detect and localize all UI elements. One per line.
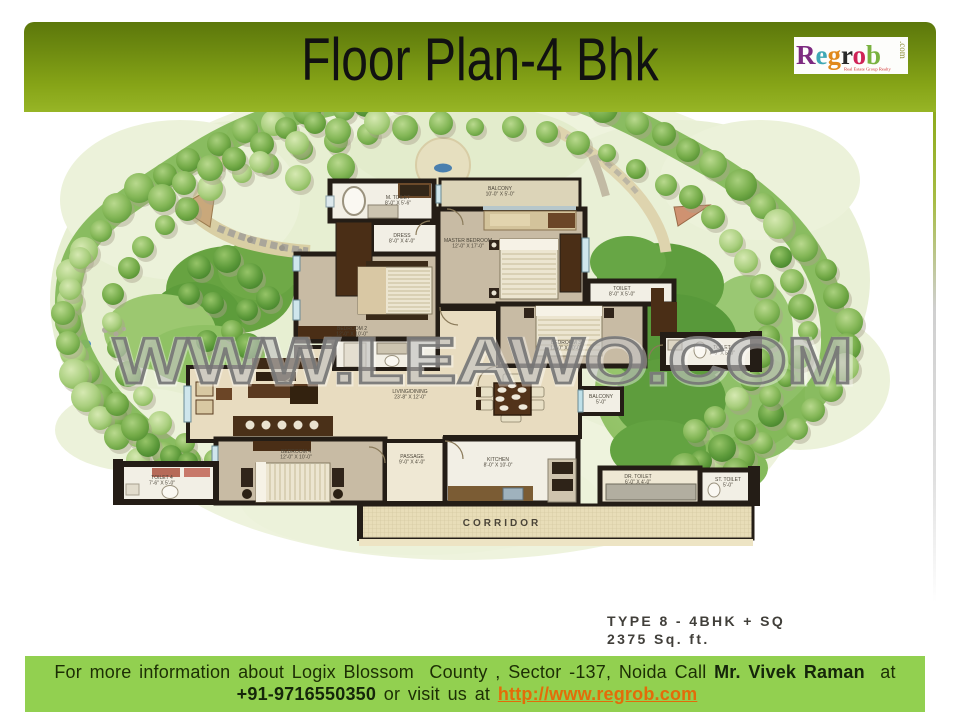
svg-text:BEDROOM 412'-0" X 10'-0": BEDROOM 412'-0" X 10'-0" [280, 449, 312, 461]
svg-text:.com: .com [898, 41, 908, 59]
svg-text:CORRIDOR: CORRIDOR [463, 518, 541, 529]
svg-text:Real Estate Group Realty: Real Estate Group Realty [844, 67, 892, 72]
svg-text:BALCONY10'-0" X 5'-0": BALCONY10'-0" X 5'-0" [486, 186, 515, 198]
svg-text:TOILET 47'-6" X 5'-0": TOILET 47'-6" X 5'-0" [149, 475, 175, 487]
svg-text:PASSAGE9'-0" X 4'-0": PASSAGE9'-0" X 4'-0" [399, 454, 425, 466]
svg-text:KITCHEN8'-0" X 10'-0": KITCHEN8'-0" X 10'-0" [484, 457, 513, 469]
svg-text:M. TOILET8'-0" X 5'-6": M. TOILET8'-0" X 5'-6" [385, 195, 411, 207]
svg-text:DR. TOILET6'-0" X 4'-0": DR. TOILET6'-0" X 4'-0" [624, 474, 651, 486]
svg-text:Regrob: Regrob [796, 40, 881, 70]
svg-text:WWW.LEAWO.COM: WWW.LEAWO.COM [113, 324, 853, 397]
